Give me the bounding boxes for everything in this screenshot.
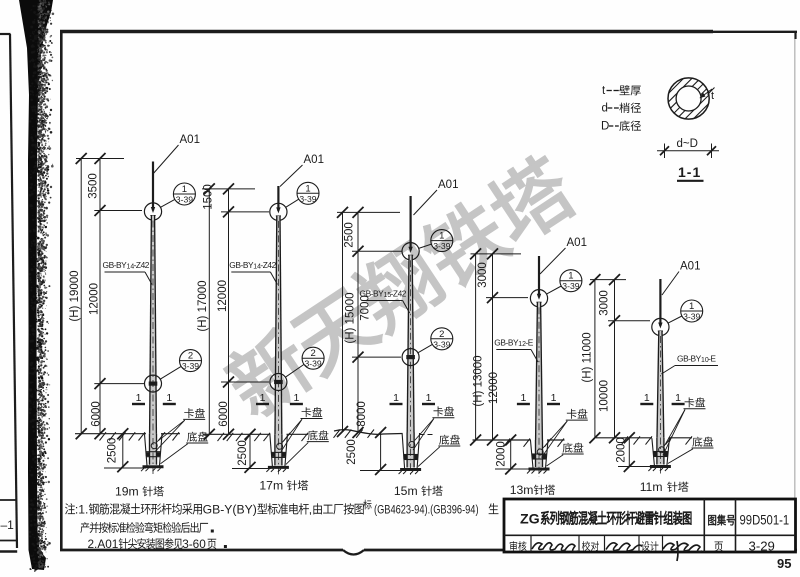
- svg-text:3-39: 3-39: [182, 361, 199, 371]
- svg-text:t: t: [711, 90, 714, 102]
- svg-text:2000: 2000: [496, 441, 508, 467]
- svg-text:2500: 2500: [344, 222, 356, 248]
- svg-text:99D501-1: 99D501-1: [740, 512, 790, 527]
- svg-text:2: 2: [310, 348, 315, 359]
- svg-text:1: 1: [520, 392, 526, 404]
- svg-text:1500: 1500: [203, 184, 215, 210]
- svg-text:2500: 2500: [346, 439, 358, 465]
- svg-text:2.A01: 2.A01: [88, 537, 119, 551]
- svg-text:1: 1: [675, 392, 681, 404]
- svg-text:11m: 11m: [640, 480, 663, 494]
- svg-text:1: 1: [439, 231, 444, 242]
- svg-text:A01: A01: [304, 154, 324, 166]
- svg-text:7000: 7000: [360, 295, 372, 321]
- svg-text:(H) 17000: (H) 17000: [197, 280, 209, 331]
- svg-text:3-39: 3-39: [562, 281, 579, 291]
- svg-text:3-39: 3-39: [299, 194, 316, 204]
- svg-text:6000: 6000: [91, 401, 103, 427]
- svg-text:3-60: 3-60: [182, 537, 206, 551]
- svg-text:3000: 3000: [599, 290, 611, 316]
- svg-text:10000: 10000: [599, 380, 611, 412]
- svg-text:2500: 2500: [237, 440, 249, 466]
- svg-text:1-1: 1-1: [678, 164, 701, 180]
- svg-text:3-39: 3-39: [683, 312, 700, 322]
- svg-text:12000: 12000: [488, 372, 500, 404]
- svg-text:ZG: ZG: [520, 512, 540, 528]
- svg-text:-Z42: -Z42: [391, 289, 407, 299]
- svg-text:-E: -E: [525, 338, 533, 348]
- svg-text:,: ,: [309, 503, 312, 517]
- svg-text:A01: A01: [680, 261, 700, 273]
- svg-text:3500: 3500: [88, 173, 100, 199]
- svg-text:(H) 11000: (H) 11000: [582, 332, 594, 382]
- svg-text:95: 95: [777, 556, 791, 571]
- svg-text:(H) 15000: (H) 15000: [345, 292, 357, 343]
- svg-text:A01: A01: [180, 134, 200, 146]
- svg-text:3-39: 3-39: [433, 339, 450, 349]
- svg-text:GB-BY: GB-BY: [677, 354, 702, 364]
- svg-text:1: 1: [260, 392, 266, 404]
- svg-text:3-29: 3-29: [749, 539, 775, 554]
- svg-text:-E: -E: [708, 354, 716, 364]
- svg-text:12000: 12000: [89, 283, 101, 315]
- svg-text:1: 1: [305, 183, 310, 194]
- svg-text:D: D: [601, 121, 609, 133]
- svg-text:(H) 13000: (H) 13000: [473, 355, 485, 406]
- svg-text:d: d: [602, 103, 608, 115]
- svg-text:3000: 3000: [477, 262, 489, 288]
- svg-text:1: 1: [136, 392, 142, 404]
- svg-text:1: 1: [293, 392, 299, 404]
- svg-text:19m: 19m: [115, 485, 139, 499]
- svg-text:1: 1: [644, 392, 650, 404]
- svg-text:A01: A01: [567, 237, 587, 249]
- svg-text:2: 2: [439, 329, 444, 340]
- svg-text:-Z42: -Z42: [260, 260, 276, 270]
- svg-text:1: 1: [551, 392, 557, 404]
- svg-text:3-39: 3-39: [433, 241, 450, 251]
- svg-text:1: 1: [393, 392, 399, 404]
- svg-text:13m: 13m: [510, 483, 534, 497]
- svg-text:GB-Y(BY): GB-Y(BY): [203, 503, 257, 517]
- svg-text:1: 1: [426, 392, 432, 404]
- svg-text:GB-BY: GB-BY: [229, 260, 254, 270]
- svg-text::1.: :1.: [75, 503, 89, 517]
- svg-text:1: 1: [182, 184, 187, 195]
- svg-text:3-39: 3-39: [176, 195, 193, 205]
- svg-text:12000: 12000: [217, 280, 229, 312]
- svg-text:(GB4623-94).(GB396-94): (GB4623-94).(GB396-94): [374, 503, 479, 517]
- svg-text:2500: 2500: [107, 438, 119, 464]
- svg-text:2: 2: [188, 351, 193, 362]
- svg-text:GB-BY: GB-BY: [494, 338, 519, 348]
- svg-text:(H) 19000: (H) 19000: [69, 270, 81, 321]
- svg-text:1: 1: [166, 392, 172, 404]
- svg-text:1: 1: [568, 271, 573, 282]
- svg-text:–1: –1: [1, 518, 15, 532]
- svg-text:1: 1: [689, 301, 694, 312]
- svg-text:6000: 6000: [218, 401, 230, 427]
- svg-text:3-39: 3-39: [304, 359, 321, 369]
- svg-text:GB-BY: GB-BY: [103, 260, 128, 270]
- svg-text:15m: 15m: [394, 484, 418, 498]
- svg-text:8000: 8000: [356, 401, 368, 427]
- svg-text:A01: A01: [438, 179, 458, 191]
- svg-text:2000: 2000: [616, 437, 628, 463]
- svg-text:17m: 17m: [259, 479, 283, 493]
- svg-text:-Z42: -Z42: [134, 260, 150, 270]
- svg-text:d~D: d~D: [677, 138, 698, 150]
